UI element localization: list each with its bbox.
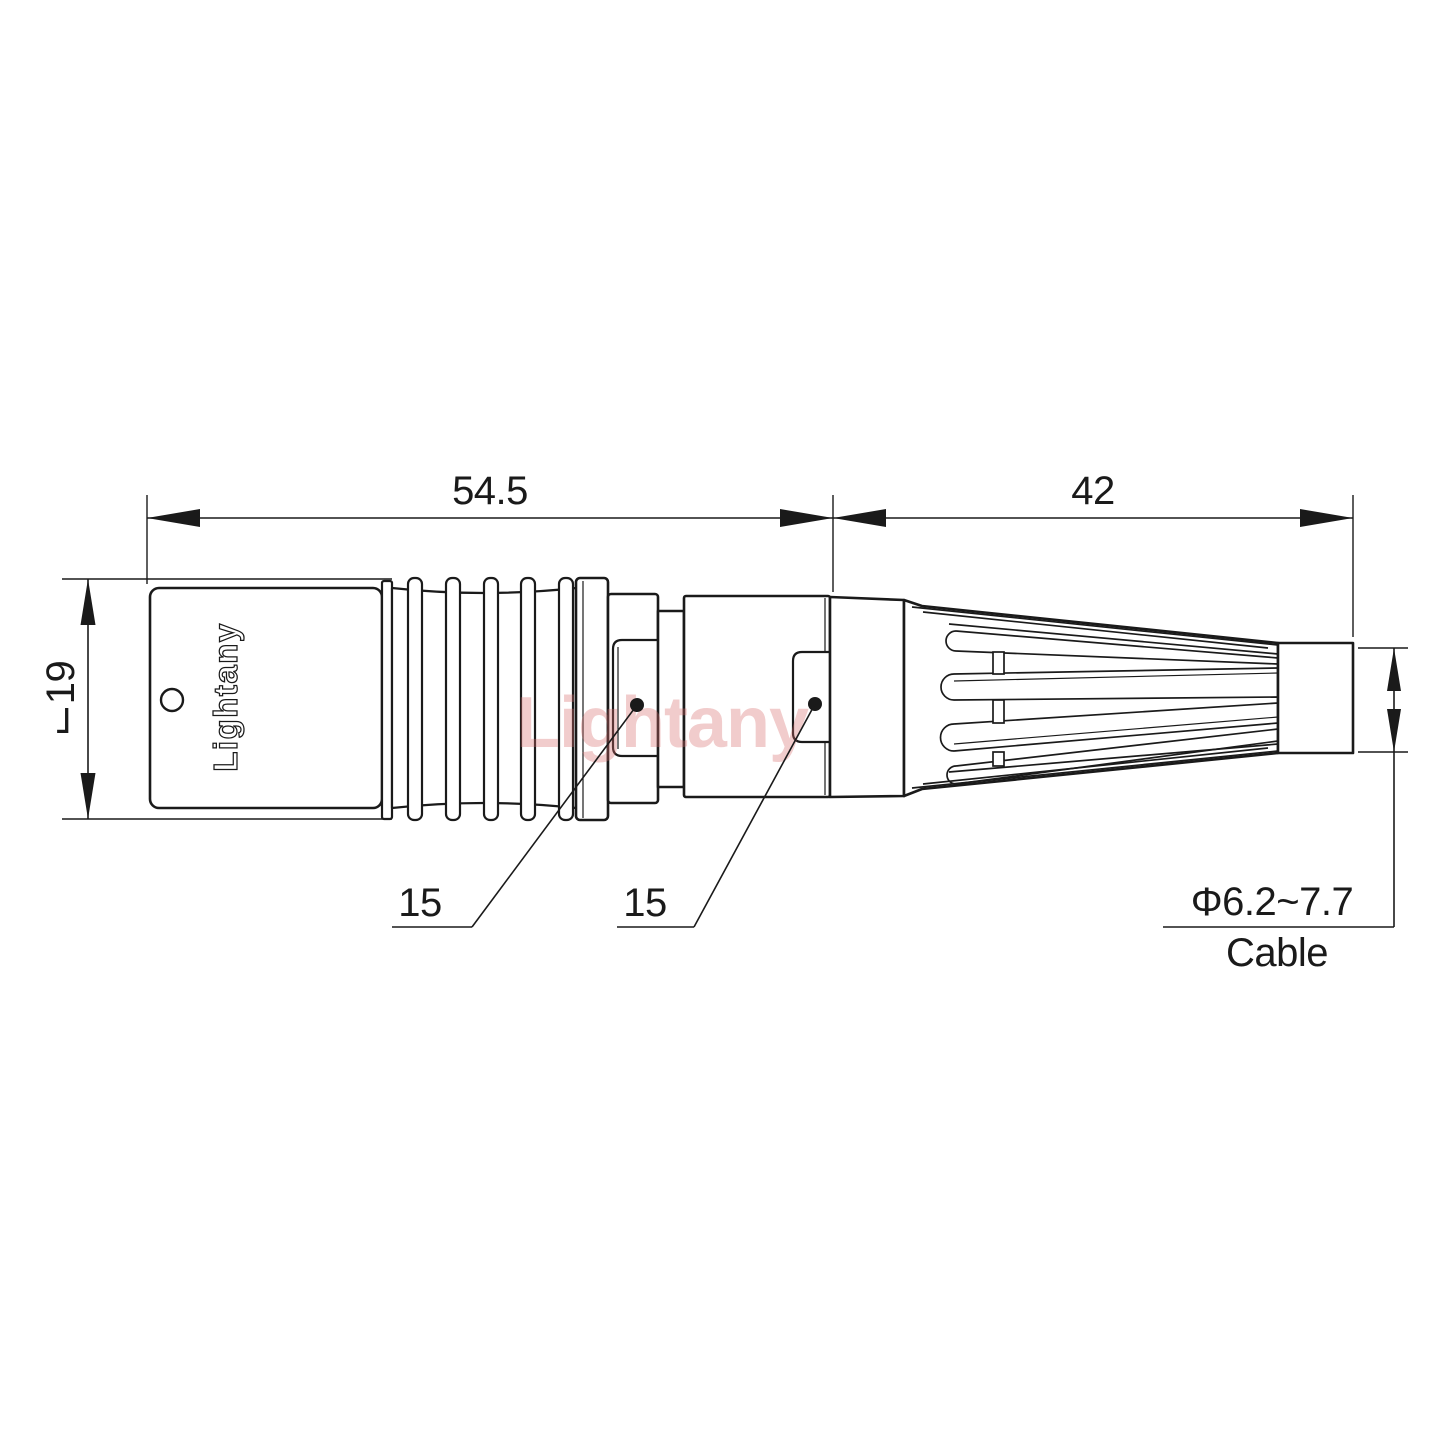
dim-cable-range-label: Φ6.2~7.7 — [1191, 880, 1353, 924]
grip-rib — [446, 578, 460, 820]
arrowhead-up — [81, 579, 96, 625]
dim-collar-label: 15 — [398, 881, 442, 925]
arrowhead-down — [81, 773, 96, 819]
fin-web — [993, 652, 1004, 674]
watermark-text: Lightany — [516, 683, 809, 763]
main-body — [150, 588, 382, 808]
dim-cable-word-label: Cable — [1226, 931, 1328, 975]
arrowhead-right — [780, 509, 833, 527]
fin-web — [993, 752, 1004, 766]
arrowhead-left — [833, 509, 886, 527]
body-joint-band — [382, 581, 392, 819]
dim-front-length: 54.5 — [147, 469, 833, 592]
drawing-canvas: Lightany Lightany 54.5 42 — [0, 0, 1440, 1440]
dim-front-length-label: 54.5 — [452, 469, 528, 513]
body-brand-label: Lightany — [207, 622, 244, 772]
fin-web — [993, 700, 1004, 723]
grip-rib — [484, 578, 498, 820]
arrowhead-up — [1387, 648, 1401, 691]
dim-back-length-label: 42 — [1071, 469, 1115, 513]
dim-nut-label: 15 — [623, 881, 667, 925]
arrowhead-down — [1387, 709, 1401, 752]
body-index-circle — [161, 689, 183, 711]
connector-drawing: Lightany Lightany 54.5 42 — [0, 0, 1440, 1440]
cable-ferrule — [1278, 643, 1353, 753]
arrowhead-left — [147, 509, 200, 527]
dim-body-diameter-label: ⌙19 — [39, 661, 83, 738]
arrowhead-right — [1300, 509, 1353, 527]
grip-rib — [408, 578, 422, 820]
back-shell — [830, 597, 904, 797]
